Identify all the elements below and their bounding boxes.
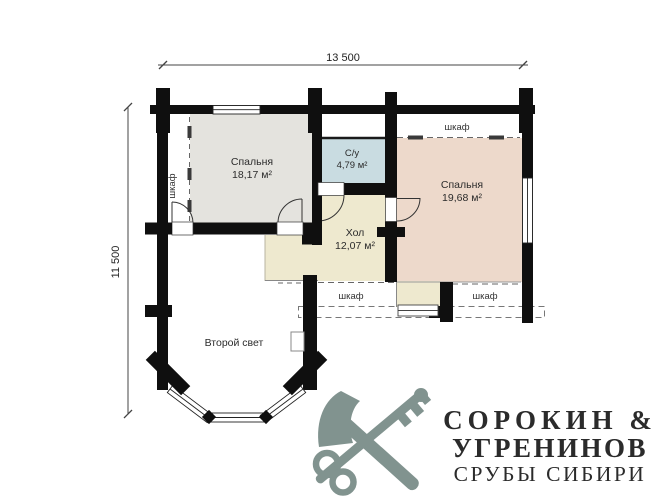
stub-bedroom2-junction xyxy=(377,227,405,237)
hall-area: 12,07 м² xyxy=(335,240,375,252)
room-fills xyxy=(190,114,523,307)
closet-left-label: шкаф xyxy=(167,173,178,198)
logo-axe-and-key-icon xyxy=(314,388,431,492)
closet-top-right-label: шкаф xyxy=(444,122,469,133)
post-north-mid1 xyxy=(308,88,322,133)
bedroom1-area: 18,17 м² xyxy=(232,169,272,181)
chimney-niche xyxy=(291,332,304,351)
floorplan-canvas: 13 500 11 500 Спальня 18,17 м² С/у 4,79 … xyxy=(0,0,667,502)
key-bow-lower xyxy=(333,472,354,493)
closet-bottom-right-label: шкаф xyxy=(472,291,497,302)
post-north-mid2 xyxy=(385,92,397,130)
bathroom-name: С/у xyxy=(345,148,360,159)
bedroom1-name: Спальня xyxy=(231,156,273,168)
room-bedroom2-floor xyxy=(396,138,523,282)
bathroom-door-opening xyxy=(318,183,344,196)
bedroom2-name: Спальня xyxy=(441,179,483,191)
logo-text-line3: СРУБЫ СИБИРИ xyxy=(454,462,647,486)
closet-door-opening xyxy=(172,222,193,235)
logo-text-line2: УГРЕНИНОВ xyxy=(452,433,648,463)
closet-bottom-center-label: шкаф xyxy=(338,291,363,302)
wall-passage-east xyxy=(440,282,453,322)
entry-door xyxy=(398,305,438,316)
stub-west-lower xyxy=(145,305,172,317)
wall-west xyxy=(157,105,168,390)
wall-bathroom-south-a xyxy=(312,183,318,195)
closet-top-mark xyxy=(408,136,423,140)
closet-left-mark xyxy=(188,168,192,180)
second-light-label: Второй свет xyxy=(205,337,264,349)
closet-left-mark xyxy=(188,126,192,138)
company-logo: СОРОКИН & УГРЕНИНОВ СРУБЫ СИБИРИ xyxy=(314,388,657,492)
wall-north xyxy=(150,105,535,114)
bedroom2-door-opening xyxy=(386,198,397,222)
floorplan-drawing: 13 500 11 500 Спальня 18,17 м² С/у 4,79 … xyxy=(0,0,667,502)
dimension-width-label: 13 500 xyxy=(326,52,360,64)
bedroom1-door-opening xyxy=(277,222,303,235)
bathroom-area: 4,79 м² xyxy=(337,160,368,171)
post-north-west xyxy=(156,88,170,133)
room-hall-entry-passage xyxy=(397,281,440,307)
post-north-east xyxy=(519,88,533,133)
dimension-height-label: 11 500 xyxy=(110,246,122,279)
wall-junction-post xyxy=(302,223,322,245)
closet-top-mark xyxy=(489,136,504,140)
logo-text-line1: СОРОКИН & xyxy=(443,405,657,435)
wall-bathroom-south-b xyxy=(344,183,386,195)
hall-name: Хол xyxy=(346,227,365,239)
stub-west-mid xyxy=(145,223,172,235)
bedroom2-area: 19,68 м² xyxy=(442,192,482,204)
